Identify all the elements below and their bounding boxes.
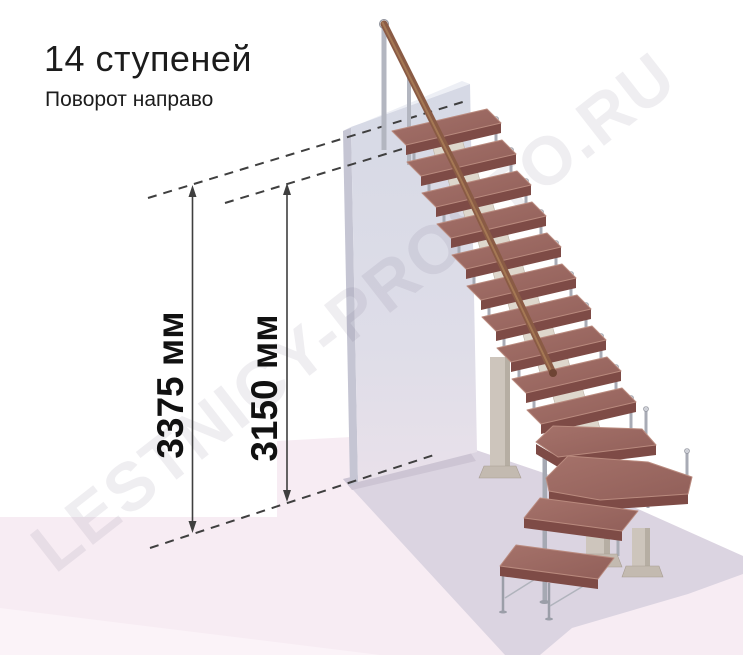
staircase-diagram: LESTNICY-PROSTO.RU bbox=[0, 0, 743, 655]
dimension-label-3375: 3375 мм bbox=[150, 311, 192, 458]
page-subtitle: Поворот направо bbox=[45, 88, 213, 112]
dimension-label-3150: 3150 мм bbox=[244, 314, 286, 461]
page-title: 14 ступеней bbox=[44, 38, 252, 80]
